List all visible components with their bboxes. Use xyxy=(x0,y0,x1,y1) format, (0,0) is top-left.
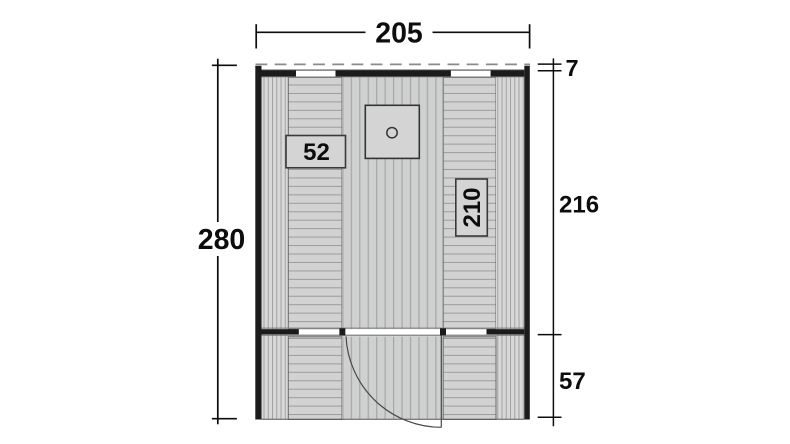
svg-text:216: 216 xyxy=(559,192,599,219)
svg-text:57: 57 xyxy=(559,368,586,395)
svg-text:52: 52 xyxy=(303,139,330,166)
svg-text:205: 205 xyxy=(375,18,423,50)
svg-text:210: 210 xyxy=(459,187,486,227)
svg-text:280: 280 xyxy=(198,224,246,256)
svg-text:7: 7 xyxy=(566,55,579,81)
